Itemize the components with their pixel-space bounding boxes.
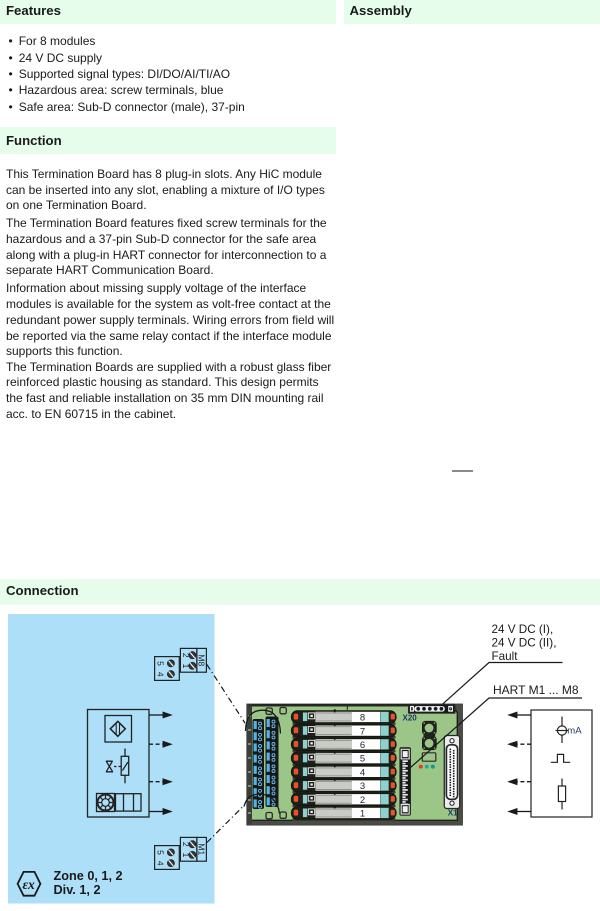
svg-text:2: 2 bbox=[360, 795, 365, 806]
svg-text:8: 8 bbox=[360, 713, 365, 724]
svg-text:24 V DC (II),: 24 V DC (II), bbox=[492, 637, 557, 650]
svg-text:εx: εx bbox=[22, 877, 35, 892]
svg-text:1: 1 bbox=[360, 809, 365, 820]
svg-text:5: 5 bbox=[155, 850, 165, 855]
svg-text:4: 4 bbox=[155, 861, 165, 866]
svg-text:M1: M1 bbox=[197, 843, 207, 855]
svg-text:Div. 1, 2: Div. 1, 2 bbox=[54, 883, 101, 897]
svg-text:5: 5 bbox=[360, 754, 365, 765]
svg-text:1: 1 bbox=[181, 853, 191, 858]
svg-text:5: 5 bbox=[155, 661, 165, 666]
svg-text:2: 2 bbox=[181, 842, 191, 847]
svg-text:2: 2 bbox=[181, 653, 191, 658]
svg-text:HART M1 ... M8: HART M1 ... M8 bbox=[493, 683, 579, 697]
svg-text:M8: M8 bbox=[197, 654, 207, 666]
svg-text:X1: X1 bbox=[448, 809, 458, 818]
svg-text:Zone 0, 1, 2: Zone 0, 1, 2 bbox=[54, 869, 123, 883]
svg-text:1: 1 bbox=[181, 664, 191, 669]
svg-text:X20: X20 bbox=[403, 714, 418, 723]
svg-text:4: 4 bbox=[360, 767, 365, 778]
svg-text:7: 7 bbox=[360, 726, 365, 737]
svg-text:6: 6 bbox=[360, 740, 365, 751]
svg-text:4: 4 bbox=[155, 672, 165, 677]
svg-text:Fault: Fault bbox=[492, 650, 519, 663]
svg-text:24 V DC (I),: 24 V DC (I), bbox=[492, 623, 554, 636]
svg-text:3: 3 bbox=[360, 781, 365, 792]
svg-text:mA: mA bbox=[567, 726, 582, 737]
